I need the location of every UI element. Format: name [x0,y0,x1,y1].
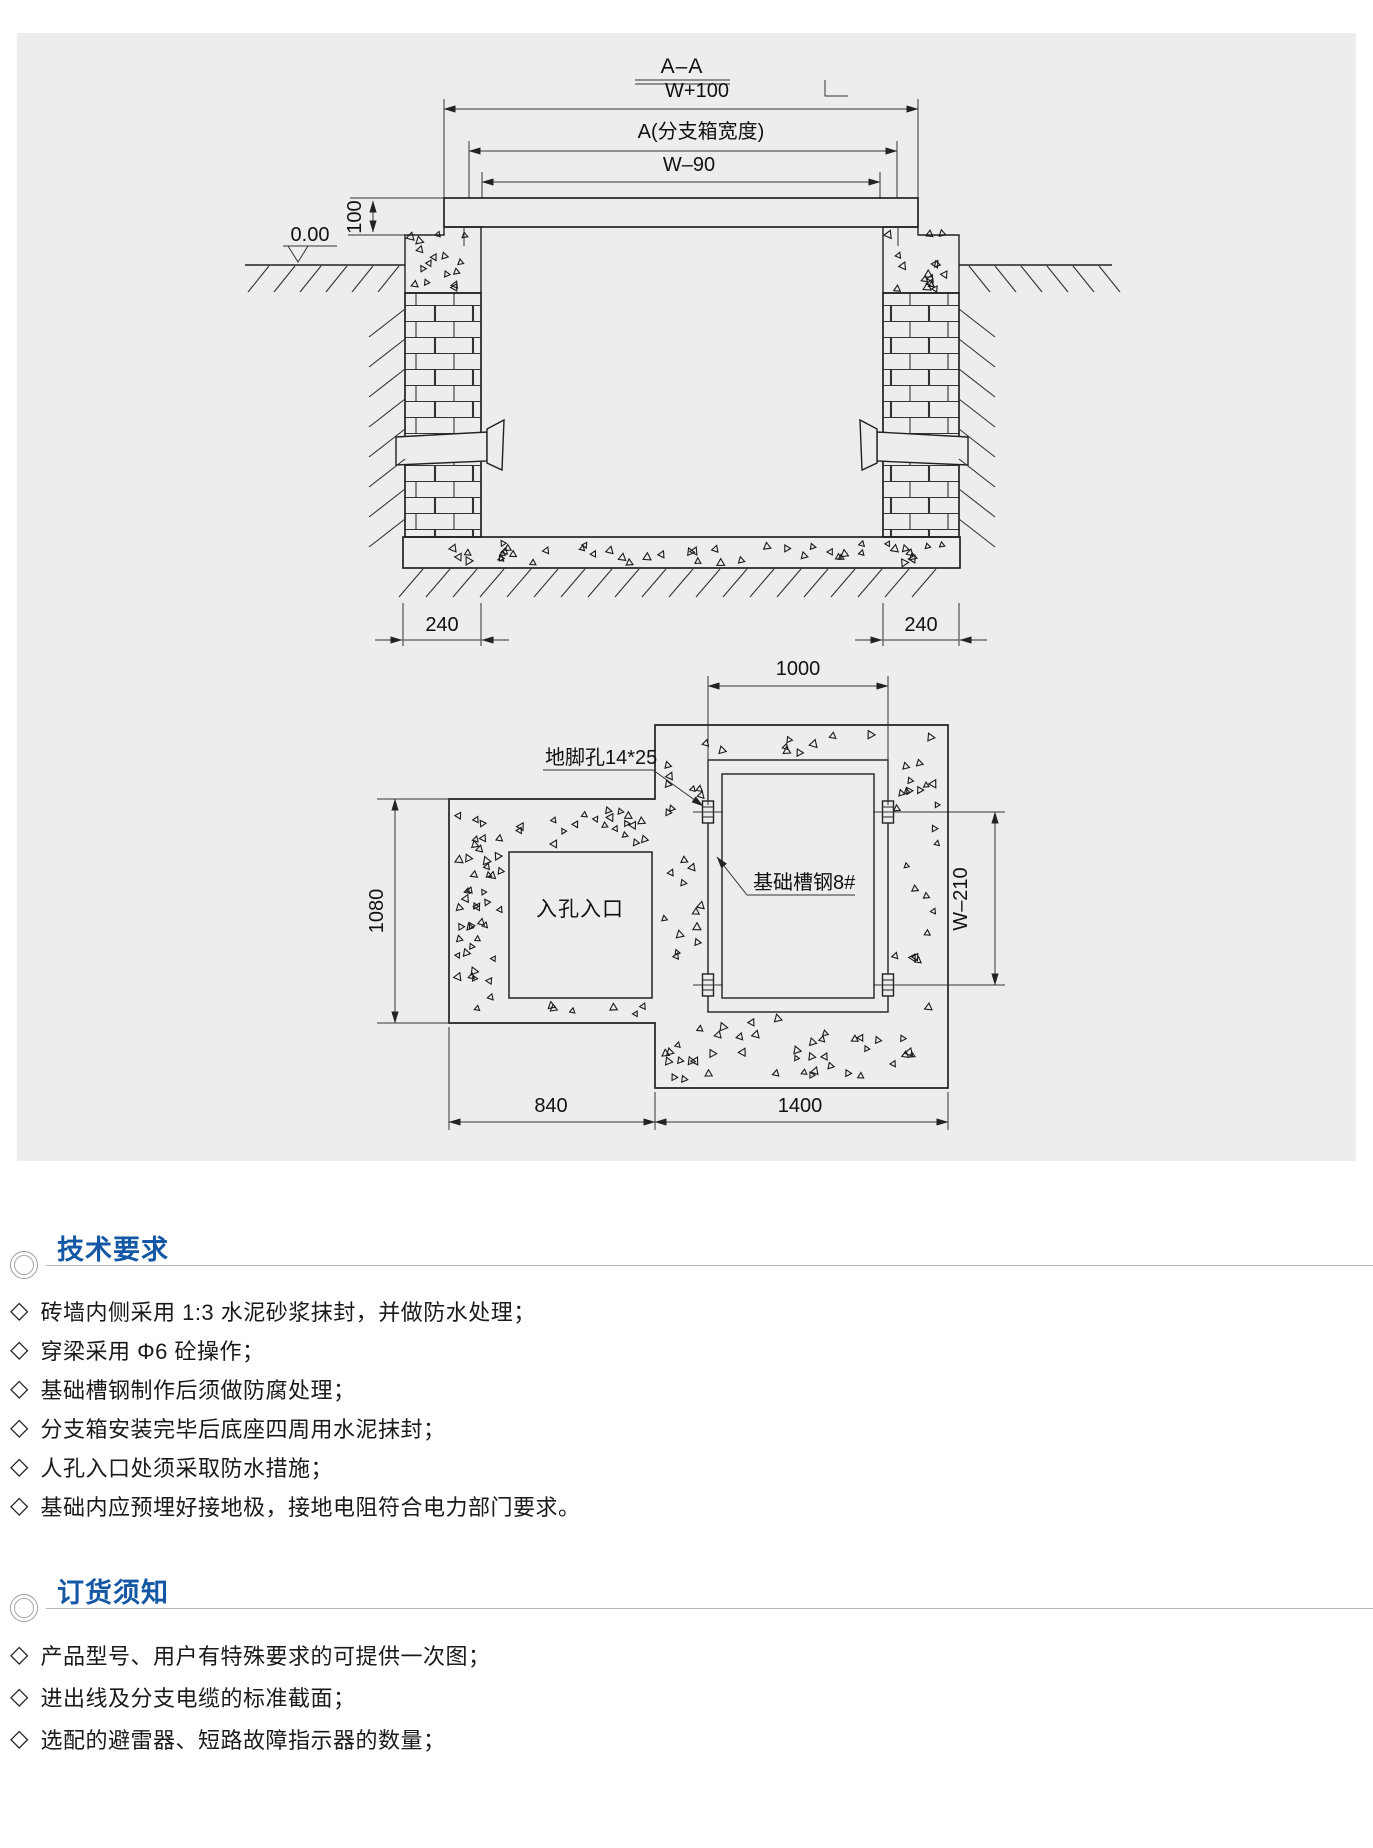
list-item-text: 穿梁采用 Φ6 砼操作； [40,1334,264,1366]
dim-w90-label: W–90 [663,154,715,176]
brick-wall-left [405,293,481,537]
diamond-bullet-icon: ◇ [10,1299,28,1323]
base-edge-stubs [464,227,898,246]
anchor-bolts [693,801,903,996]
diamond-bullet-icon: ◇ [10,1494,28,1518]
svg-text:1400: 1400 [778,1095,823,1117]
svg-text:240: 240 [425,614,458,636]
divider-line [46,1608,1373,1609]
ring-ornament-icon [10,1251,38,1279]
svg-text:1080: 1080 [366,889,388,934]
technical-drawing: A–A W+100 A(分支箱宽度) W–90 100 0.00 [17,33,1356,1161]
list-item-text: 产品型号、用户有特殊要求的可提供一次图； [40,1639,490,1671]
list-item-text: 人孔入口处须采取防水措施； [40,1451,333,1483]
drawing-panel: A–A W+100 A(分支箱宽度) W–90 100 0.00 [17,33,1356,1161]
list-item: ◇基础内应预埋好接地极，接地电阻符合电力部门要求。 [0,1486,1373,1525]
svg-text:地脚孔14*25: 地脚孔14*25 [545,746,657,769]
manhole-opening [509,852,652,998]
dim-a-label: A(分支箱宽度) [638,120,765,143]
corner-mark [825,80,848,96]
list-item-text: 基础内应预埋好接地极，接地电阻符合电力部门要求。 [40,1490,580,1522]
page: { "colors": { "panel": "#EDEDEE", "accen… [0,0,1373,1848]
dim-w100-ext [444,99,918,198]
concrete-cap-right [883,227,959,293]
diamond-bullet-icon: ◇ [10,1377,28,1401]
svg-text:840: 840 [534,1095,567,1117]
svg-text:240: 240 [904,614,937,636]
list-item-text: 选配的避雷器、短路故障指示器的数量； [40,1723,445,1755]
box-base [444,198,918,227]
dim-1400: 1400 [655,1092,948,1130]
ordering-notes-list: ◇产品型号、用户有特殊要求的可提供一次图；◇进出线及分支电缆的标准截面；◇选配的… [0,1634,1373,1760]
list-item-text: 砖墙内侧采用 1:3 水泥砂浆抹封，并做防水处理； [40,1295,535,1327]
brick-wall-right [883,293,959,537]
section-view: A–A W+100 A(分支箱宽度) W–90 100 0.00 [245,55,1120,646]
anchor-hole-callout: 地脚孔14*25 [543,746,703,806]
diamond-bullet-icon: ◇ [10,1338,28,1362]
list-item-text: 分支箱安装完毕后底座四周用水泥抹封； [40,1412,445,1444]
dim-1080: 1080 [366,799,449,1023]
dim-w210: W–210 [886,812,1005,985]
plan-view: 入孔入口 1000 1080 W–210 840 [366,658,1005,1130]
svg-text:1000: 1000 [776,658,821,680]
concrete-stipple [406,230,947,1082]
diamond-bullet-icon: ◇ [10,1643,28,1667]
dim-240-right: 240 [855,603,987,646]
dim-w100-label: W+100 [665,80,729,102]
diamond-bullet-icon: ◇ [10,1685,28,1709]
level-label: 0.00 [291,224,330,246]
list-item: ◇选配的避雷器、短路故障指示器的数量； [0,1718,1373,1760]
dim-840: 840 [449,1027,655,1130]
section-divider [0,1593,1373,1623]
list-item: ◇砖墙内侧采用 1:3 水泥砂浆抹封，并做防水处理； [0,1291,1373,1330]
list-item: ◇分支箱安装完毕后底座四周用水泥抹封； [0,1408,1373,1447]
diamond-bullet-icon: ◇ [10,1416,28,1440]
level-triangle-icon [288,246,308,262]
dim-1000: 1000 [708,658,888,805]
list-item: ◇基础槽钢制作后须做防腐处理； [0,1369,1373,1408]
requirements-list: ◇砖墙内侧采用 1:3 水泥砂浆抹封，并做防水处理；◇穿梁采用 Φ6 砼操作；◇… [0,1291,1373,1525]
channel-steel-callout: 基础槽钢8# [717,857,856,895]
divider-line [46,1265,1373,1266]
list-item: ◇穿梁采用 Φ6 砼操作； [0,1330,1373,1369]
manhole-label: 入孔入口 [536,898,624,921]
list-item: ◇人孔入口处须采取防水措施； [0,1447,1373,1486]
svg-text:基础槽钢8#: 基础槽钢8# [753,871,856,894]
section-title-aa: A–A [661,55,704,78]
list-item: ◇进出线及分支电缆的标准截面； [0,1676,1373,1718]
section-divider [0,1250,1373,1280]
diamond-bullet-icon: ◇ [10,1727,28,1751]
svg-text:W–210: W–210 [950,867,972,930]
list-item: ◇产品型号、用户有特殊要求的可提供一次图； [0,1634,1373,1676]
diamond-bullet-icon: ◇ [10,1455,28,1479]
list-item-text: 基础槽钢制作后须做防腐处理； [40,1373,355,1405]
anchor-bolt-icon [693,974,723,996]
ring-ornament-icon [10,1594,38,1622]
dim-240-left: 240 [375,603,509,646]
dim-100-label: 100 [344,200,366,233]
foundation-slab [403,537,960,568]
soil-hatch [248,266,1120,597]
list-item-text: 进出线及分支电缆的标准截面； [40,1681,355,1713]
